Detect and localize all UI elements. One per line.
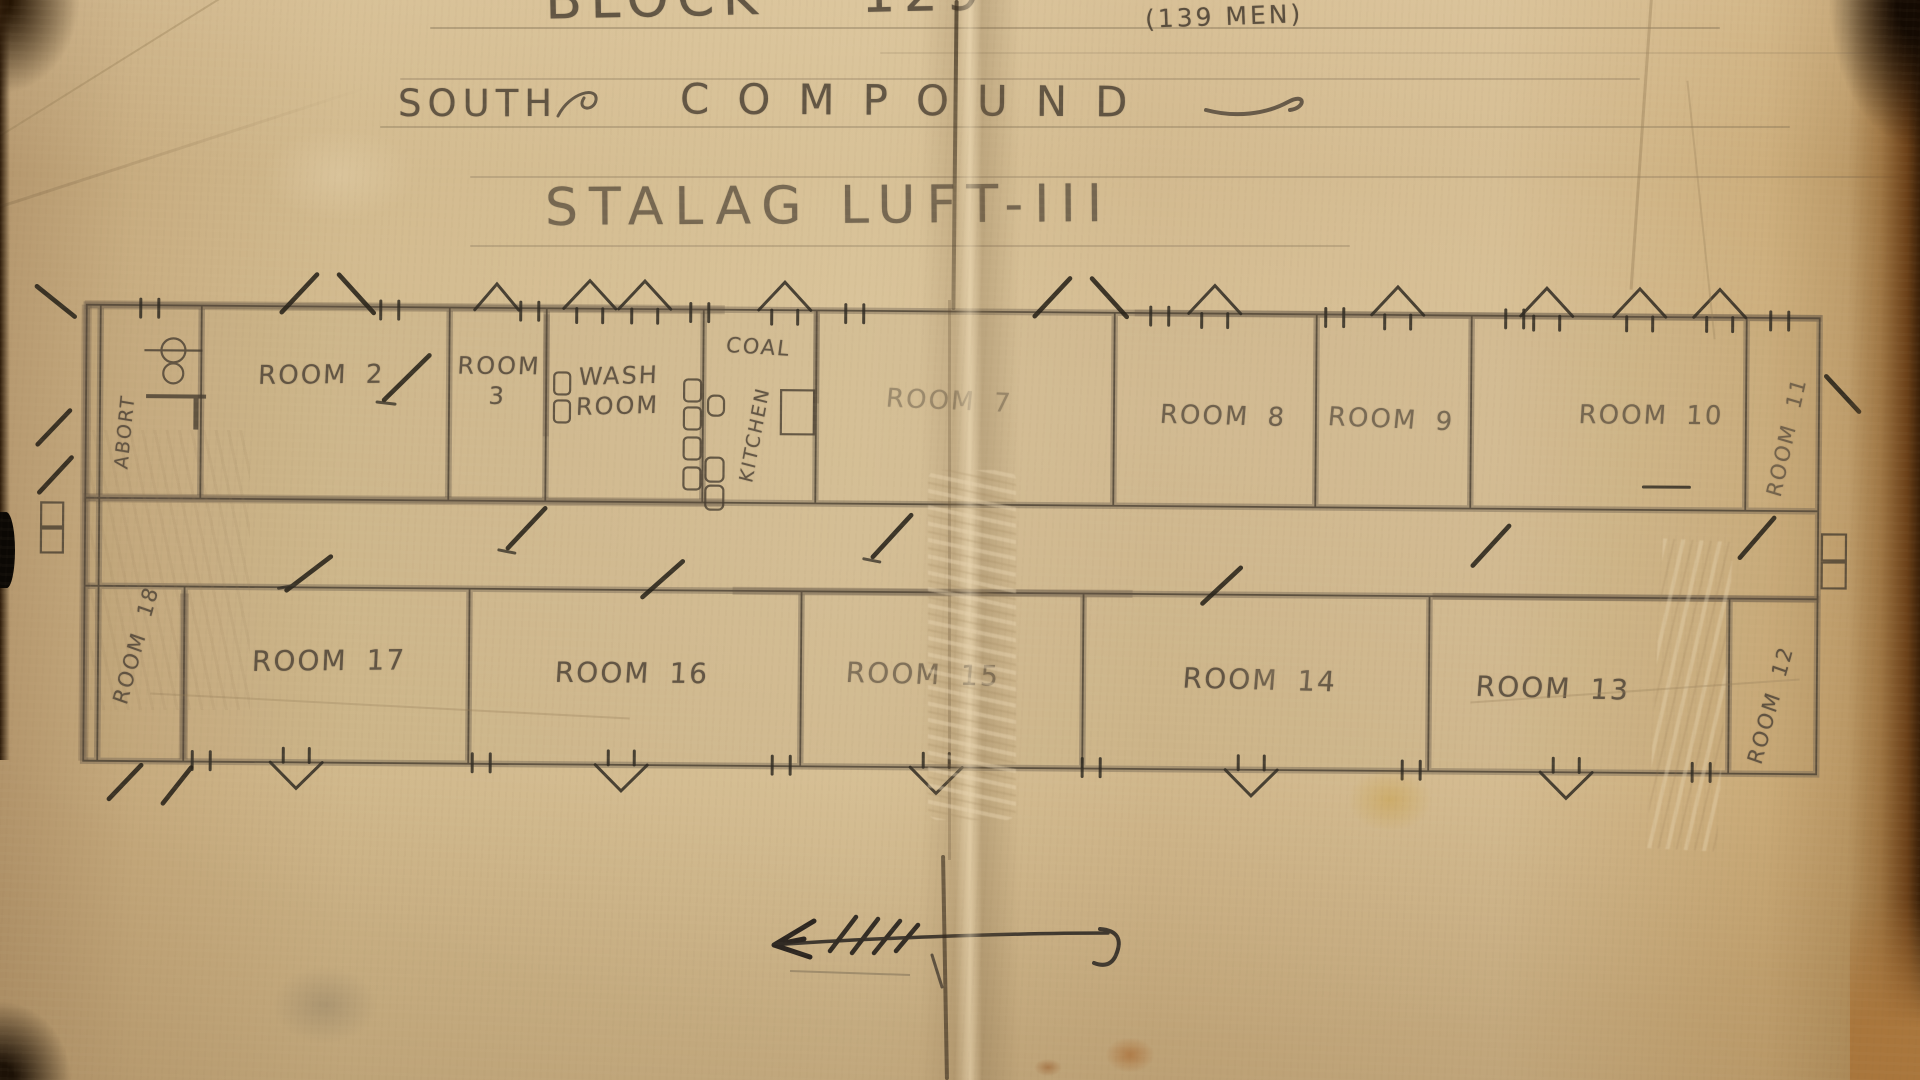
center-fold-line	[951, 0, 958, 310]
photo-corner-bottom-left	[0, 975, 95, 1080]
north-arrow	[760, 893, 1140, 1003]
room-label: ROOM 7	[884, 383, 1013, 421]
guide-line	[880, 52, 1900, 54]
room-label: ROOM 14	[1181, 661, 1338, 700]
room-label: ROOM 9	[1326, 401, 1455, 439]
worn-spot	[230, 110, 450, 240]
room-label: ROOM 2	[257, 359, 385, 393]
guide-line	[380, 126, 1790, 128]
flourish-icon	[552, 86, 624, 126]
photo-edge-notch	[0, 512, 15, 588]
stain	[1095, 1030, 1165, 1080]
photo-corner-top-right	[1790, 0, 1920, 210]
photo-corner-bottom-right	[1850, 900, 1920, 1080]
room-label: ROOM 3	[450, 351, 546, 412]
stain	[1028, 1055, 1068, 1080]
title-camp-name: STALAG LUFT-III	[545, 174, 1114, 238]
photograph-of-floor-plan: BLOCK 129 (139 MEN) SOUTH COMPOUND STALA…	[0, 0, 1920, 1080]
room-label: ROOM 16	[554, 655, 710, 691]
room-label: WASH ROOM	[559, 359, 678, 422]
room-label: ROOM 17	[251, 642, 407, 678]
photo-edge-left	[0, 0, 10, 760]
floor-plan: ABORT ROOM 2 ROOM 3 WASH ROOM COAL KITCH…	[81, 303, 1825, 782]
room-label-coal: COAL	[724, 332, 792, 362]
room-label: ROOM 15	[844, 655, 1001, 694]
title-compound-word-compound: COMPOUND	[680, 74, 1156, 126]
title-capacity: (139 MEN)	[1145, 0, 1304, 34]
room-label: ROOM 8	[1159, 399, 1288, 435]
room-label: ROOM 13	[1474, 669, 1631, 708]
guide-line	[470, 245, 1350, 247]
room-label: ROOM 10	[1578, 399, 1725, 433]
stain	[250, 950, 400, 1060]
crease-line	[0, 0, 248, 141]
crease-line	[0, 85, 370, 218]
title-compound-word-south: SOUTH	[398, 82, 558, 125]
crease-line	[1630, 0, 1654, 290]
flourish-icon	[1200, 84, 1320, 124]
photo-corner-top-left	[0, 0, 110, 130]
floor-plan-drawing	[21, 262, 1885, 837]
